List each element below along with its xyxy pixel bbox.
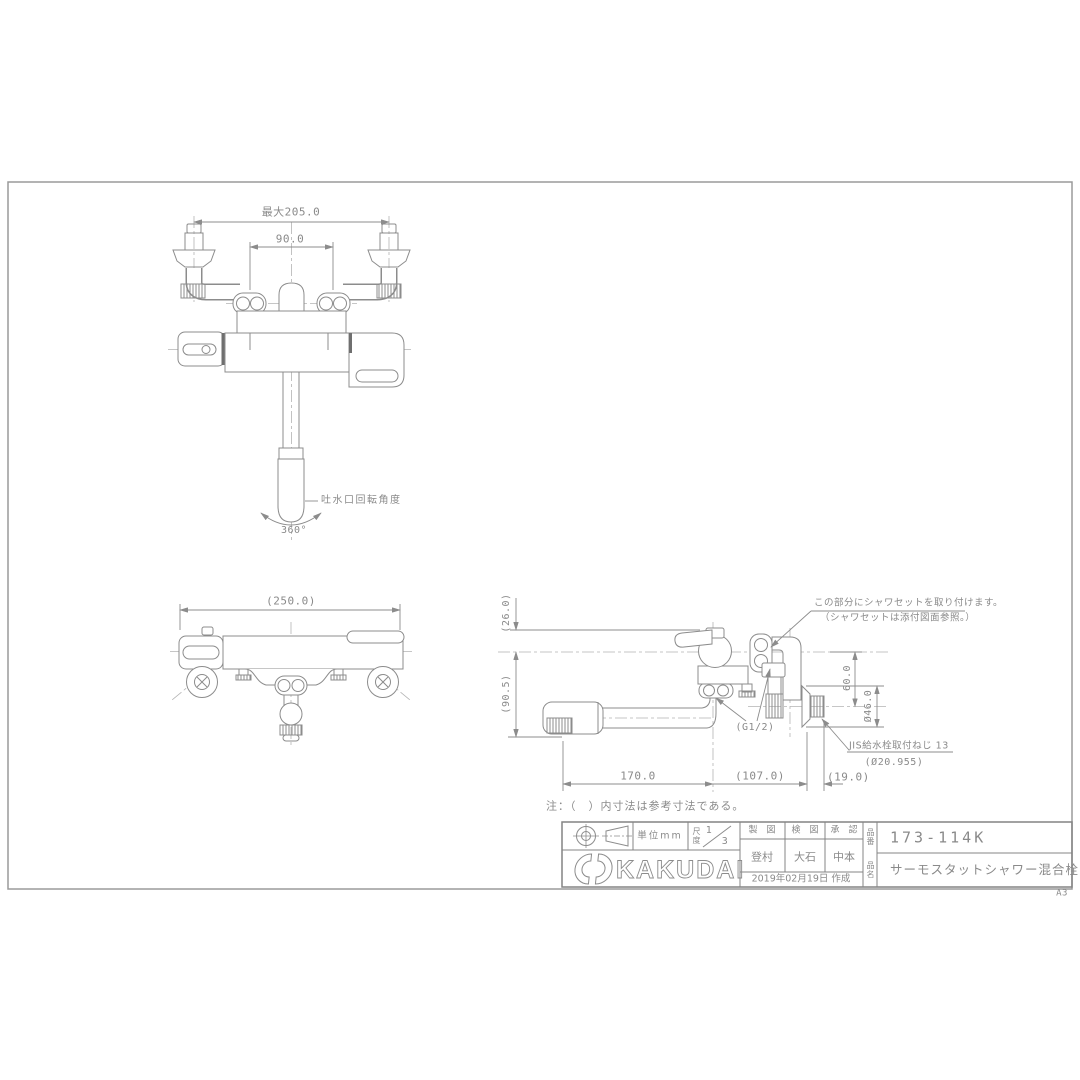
dim-flange-diameter: Ø46.0 [864,690,874,723]
product-name-value: サーモスタットシャワー混合栓 [890,864,1079,877]
checked-header: 検 図 [791,827,818,836]
approved-name: 中本 [833,852,855,863]
dim-drop-height: (90.5) [502,674,512,713]
dim-body-depth: (107.0) [735,771,785,782]
top-view-linework [168,216,412,540]
kakudai-logo-text: KAKUDAI [616,856,745,884]
drawing-sheet: KAKUDAI 最大205.0 90.0 吐水口回転角度 360° (250.0… [0,0,1080,1080]
sheet-frame [8,182,1072,889]
dim-nipple-length: (19.0) [827,772,870,783]
scale-denominator: 3 [722,837,729,847]
reference-dimension-footnote: 注：（ ）内寸法は参考寸法である。 [546,801,744,812]
jis-thread-note-line1: JIS給水栓取付ねじ 13 [849,741,949,751]
date-created: 2019年02月19日 作成 [752,874,851,884]
spout-rotation-angle: 360° [281,526,307,536]
approved-header: 承 認 [830,827,857,836]
drafted-header: 製 図 [748,827,775,836]
dim-overall-max: 最大205.0 [262,207,321,218]
dim-overall-width: (250.0) [266,596,316,607]
sheet-size-code: A3 [1056,890,1068,899]
dim-top-offset: (26.0) [502,593,512,632]
part-number-value: 173-114K [890,831,986,846]
part-number-label: 品番 [866,828,874,846]
third-angle-projection-icon [573,824,632,848]
jis-thread-note-line2: (Ø20.955) [865,758,924,768]
shower-note-line1: この部分にシャワセットを取り付けます。 [814,598,1003,608]
shower-note-line2: （シャワセットは添付図面参照。） [820,613,975,623]
dim-center-spacing: 90.0 [276,234,305,245]
dim-shower-riser: 60.0 [843,665,853,691]
scale-numerator: 1 [706,826,713,836]
kakudai-logo: KAKUDAI [573,854,745,884]
dim-spout-reach: 170.0 [620,771,656,782]
front-view-linework [170,604,412,748]
checked-name: 大石 [794,852,816,863]
drafted-name: 登村 [751,852,773,863]
technical-drawing-linework: KAKUDAI [0,0,1080,1080]
thread-size-label: (G1/2) [735,723,774,733]
product-name-label: 品名 [866,861,874,879]
unit-label: 単位mm [637,831,683,841]
spout-rotation-label: 吐水口回転角度 [321,496,402,506]
scale-label: 尺度 [692,827,700,845]
